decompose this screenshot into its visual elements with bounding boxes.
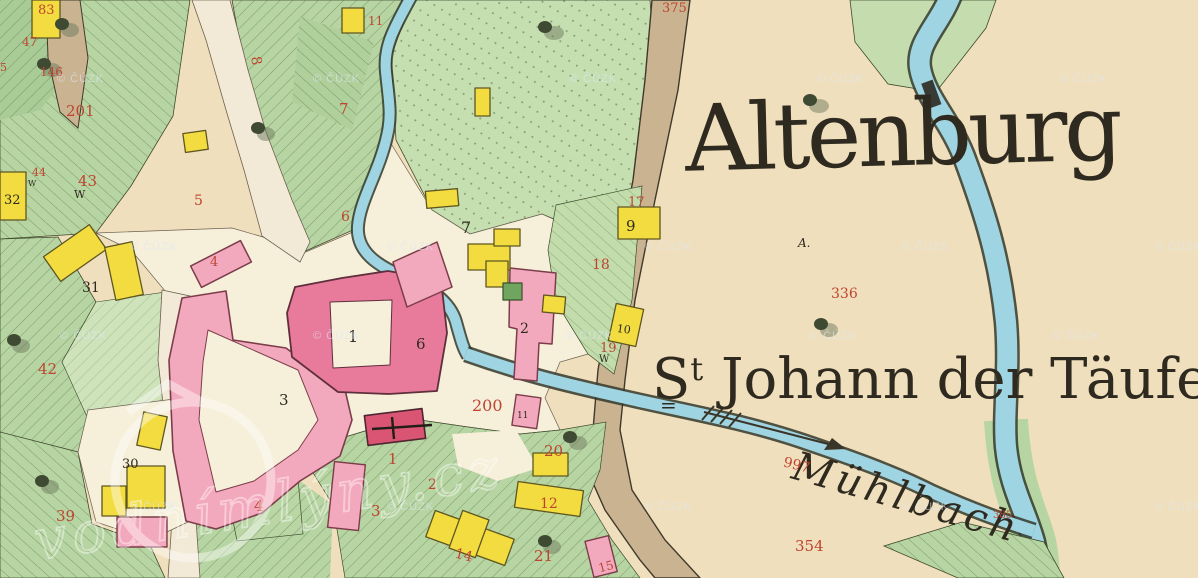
parcel-number: 83 [38, 3, 55, 18]
church-name-rest: Johann der Täufer [703, 347, 1198, 412]
watermark: © ČÚZK [57, 72, 104, 85]
parcel-number: 20 [544, 442, 563, 460]
meadow-mark: W [28, 179, 37, 188]
parcel-number: 385 [993, 510, 1012, 521]
watermark: © ČÚZK [566, 329, 613, 342]
parcel-number: 11 [368, 14, 383, 28]
parcel-number: 375 [662, 1, 687, 16]
parcel-number: 47 [22, 35, 37, 49]
watermark: © ČÚZK [570, 72, 617, 85]
cadastral-map-canvas: Altenburg St Johann der Täufer = Mühlbac… [0, 0, 1198, 578]
house-number: 3 [279, 391, 289, 409]
meadow-mark: W [599, 354, 610, 365]
parcel-number: 6 [341, 209, 350, 225]
parcel-number: 200 [472, 396, 503, 415]
settlement-name-label: Altenburg [683, 74, 1127, 193]
watermark: © ČÚZK [60, 329, 107, 342]
historic-cadastral-map-viewport[interactable]: Altenburg St Johann der Täufer = Mühlbac… [0, 0, 1198, 578]
garden-plot-square [503, 283, 522, 300]
survey-mark-label: A. [797, 236, 810, 250]
watermark: © ČÚZK [130, 240, 177, 253]
yellow-building [475, 88, 490, 116]
watermark: © ČÚZK [810, 329, 857, 342]
parcel-number: 5 [194, 193, 203, 209]
house-number: 2 [520, 321, 529, 337]
watermark: © ČÚZK [313, 329, 360, 342]
yellow-building [183, 130, 208, 152]
yellow-building-9 [618, 207, 660, 239]
yellow-building [342, 8, 364, 33]
watermark: © ČÚZK [1155, 240, 1198, 253]
parcel-number: 201 [66, 102, 95, 120]
parcel-number: 7 [339, 100, 349, 118]
yellow-building [542, 295, 565, 314]
parcel-number: 354 [795, 537, 824, 555]
parcel-number: 42 [38, 360, 57, 378]
watermark: © ČÚZK [817, 72, 864, 85]
house-number: 31 [82, 280, 100, 296]
meadow-mark: W [74, 188, 86, 201]
parcel-number: 12 [540, 496, 558, 512]
watermark: © ČÚZK [902, 240, 949, 253]
house-number: 9 [626, 217, 636, 235]
parcel-number: 17 [628, 195, 645, 210]
house-number: 30 [122, 457, 139, 472]
church-name-label: St Johann der Täufer [652, 347, 1198, 412]
parcel-number: 4 [210, 255, 218, 270]
house-number: 7 [461, 218, 471, 237]
parcel-number: 18 [592, 257, 610, 273]
watermark: © ČÚZK [1155, 500, 1198, 513]
house-number: 11 [517, 411, 528, 421]
church-name-underline-mark: = [660, 393, 677, 417]
watermark: © ČÚZK [902, 500, 949, 513]
house-number: 6 [416, 335, 426, 353]
house-number: 10 [616, 322, 632, 337]
yellow-building [494, 229, 520, 246]
watermark: © ČÚZK [645, 500, 692, 513]
watermark: © ČÚZK [645, 240, 692, 253]
parcel-number: 44 [32, 166, 46, 179]
watermark: © ČÚZK [387, 240, 434, 253]
watermark: © ČÚZK [1060, 72, 1107, 85]
yellow-building [425, 189, 458, 209]
watermark: © ČÚZK [1053, 329, 1100, 342]
parcel-number: 21 [534, 547, 553, 565]
parcel-number: 5 [0, 61, 7, 74]
house-number: 32 [4, 193, 21, 208]
watermark: © ČÚZK [313, 72, 360, 85]
parcel-number: 336 [831, 286, 858, 302]
church-name-superscript: t [690, 350, 703, 388]
